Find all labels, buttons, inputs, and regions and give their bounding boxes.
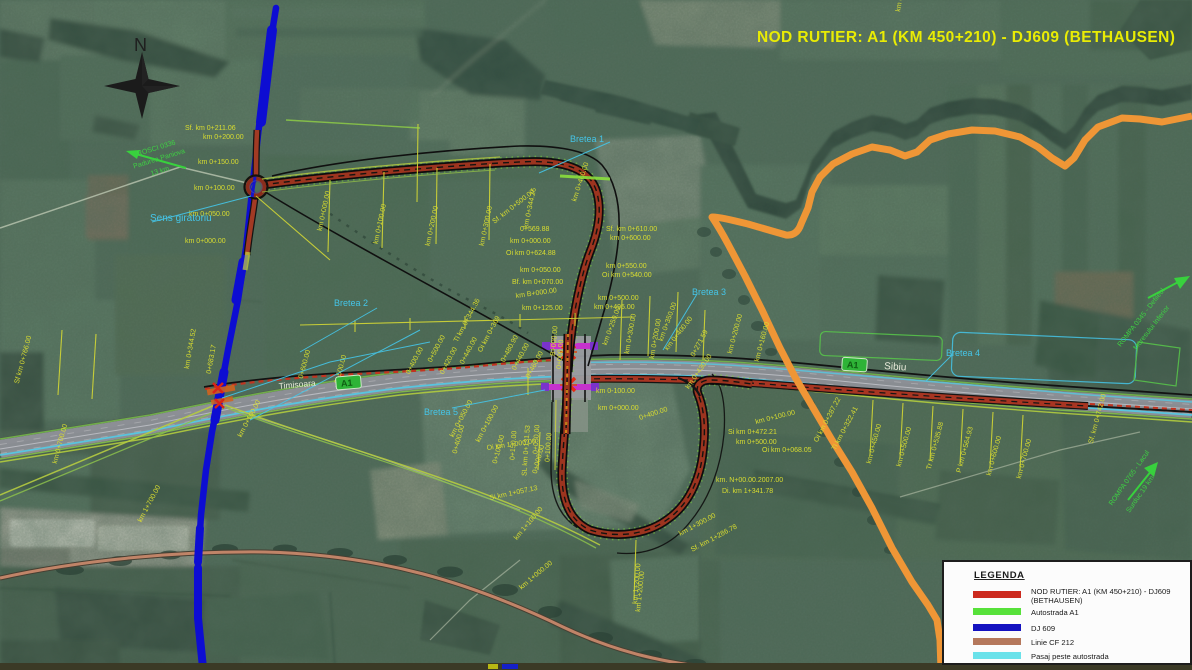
svg-text:Di. km 1+341.78: Di. km 1+341.78 [722,488,773,495]
svg-text:Oi km 0+540.00: Oi km 0+540.00 [602,272,652,279]
svg-text:Bretea 1: Bretea 1 [570,134,604,144]
svg-text:km 0+200.00: km 0+200.00 [203,134,244,141]
svg-text:NOD RUTIER: A1 (KM 450+210) -: NOD RUTIER: A1 (KM 450+210) - DJ609 [1031,587,1170,596]
svg-text:Sf. km 0+610.00: Sf. km 0+610.00 [606,226,657,233]
svg-text:Bretea 2: Bretea 2 [334,298,368,308]
svg-text:km 0+600.00: km 0+600.00 [610,235,651,242]
svg-text:DJ 609: DJ 609 [1031,624,1055,633]
svg-text:km 0+550.00: km 0+550.00 [606,263,647,270]
svg-text:km 0-100.00: km 0-100.00 [596,388,635,395]
svg-text:Sens giratoriu: Sens giratoriu [150,213,212,224]
svg-text:Bretea 5: Bretea 5 [424,407,458,417]
svg-text:A1: A1 [847,360,859,371]
svg-text:Autostrada A1: Autostrada A1 [1031,608,1079,617]
svg-text:km 0+150.00: km 0+150.00 [198,159,239,166]
svg-text:(BETHAUSEN): (BETHAUSEN) [1031,596,1083,605]
svg-text:Oi km 0+624.88: Oi km 0+624.88 [506,250,556,257]
svg-text:Si km 0+472.21: Si km 0+472.21 [728,429,777,436]
svg-text:Bretea 4: Bretea 4 [946,348,980,358]
svg-text:km 0+000.00: km 0+000.00 [185,238,226,245]
svg-text:Oi km 0+068.05: Oi km 0+068.05 [762,447,812,454]
svg-text:km 0+000.00: km 0+000.00 [510,238,551,245]
svg-text:Sibiu: Sibiu [884,361,907,374]
svg-text:0+569.88: 0+569.88 [520,226,549,233]
svg-text:Bretea 3: Bretea 3 [692,287,726,297]
svg-text:Bf. km 0+070.00: Bf. km 0+070.00 [512,279,563,286]
svg-text:NOD RUTIER: A1 (KM 450+210) -: NOD RUTIER: A1 (KM 450+210) - DJ609 (BET… [757,29,1175,46]
svg-text:km 0+000.00: km 0+000.00 [598,405,639,412]
svg-text:km 0+125.00: km 0+125.00 [522,305,563,312]
svg-text:km. N+00.00.2007.00: km. N+00.00.2007.00 [716,477,783,484]
svg-text:N: N [134,35,147,55]
svg-text:km 0+050.00: km 0+050.00 [520,267,561,274]
svg-text:km 0+100.00: km 0+100.00 [194,185,235,192]
svg-text:Sf. km 0+211.06: Sf. km 0+211.06 [185,125,236,132]
svg-text:Pasaj peste autostrada: Pasaj peste autostrada [1031,652,1109,661]
svg-text:LEGENDA: LEGENDA [974,570,1025,581]
svg-text:km 0+500.00: km 0+500.00 [598,295,639,302]
svg-text:km 0+500.00: km 0+500.00 [736,439,777,446]
svg-text:Linie CF 212: Linie CF 212 [1031,638,1074,647]
svg-text:A1: A1 [341,378,353,389]
